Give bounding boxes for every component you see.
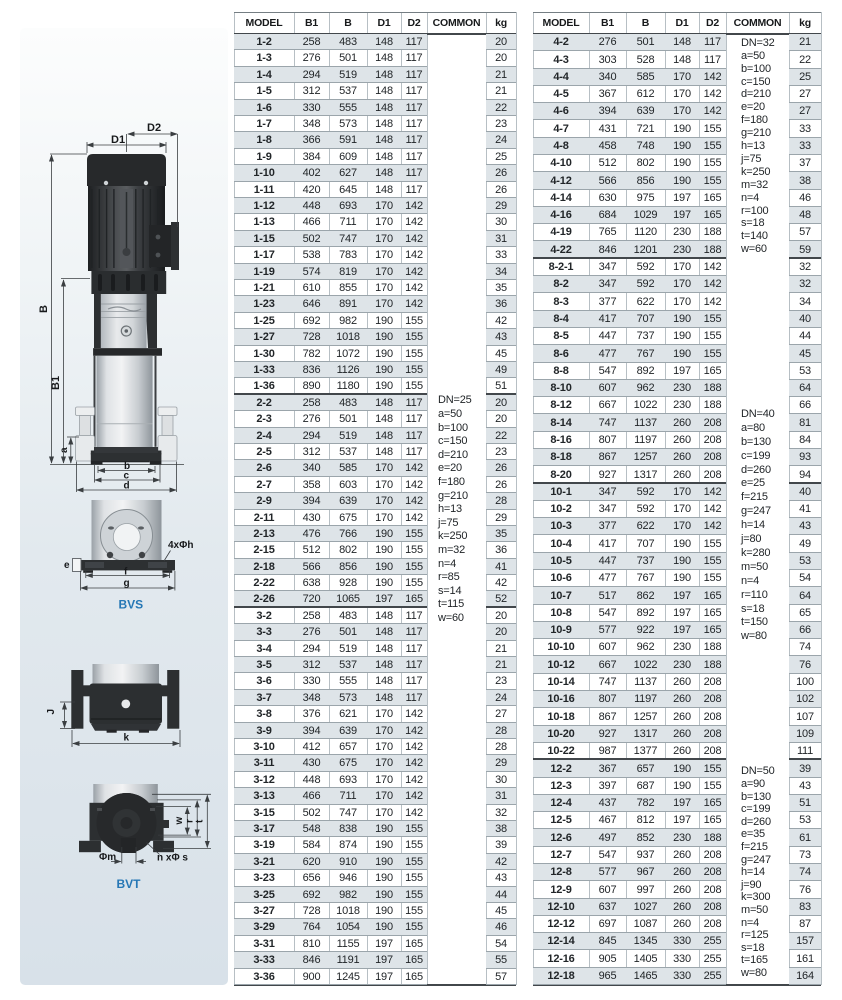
- svg-text:D1: D1: [111, 134, 125, 146]
- svg-text:t: t: [195, 819, 206, 823]
- svg-text:BVT: BVT: [117, 877, 142, 891]
- svg-text:D2: D2: [147, 122, 161, 134]
- svg-text:a: a: [59, 447, 70, 453]
- svg-text:g: g: [124, 578, 130, 589]
- svg-text:B: B: [38, 305, 50, 313]
- svg-text:B1: B1: [50, 376, 62, 390]
- svg-text:BVS: BVS: [119, 598, 144, 612]
- svg-text:n xΦ s: n xΦ s: [157, 853, 188, 864]
- svg-text:4xΦh: 4xΦh: [168, 540, 193, 551]
- svg-text:e: e: [64, 560, 70, 571]
- svg-text:k: k: [124, 733, 130, 744]
- svg-text:J: J: [46, 709, 57, 715]
- svg-text:w: w: [174, 817, 185, 826]
